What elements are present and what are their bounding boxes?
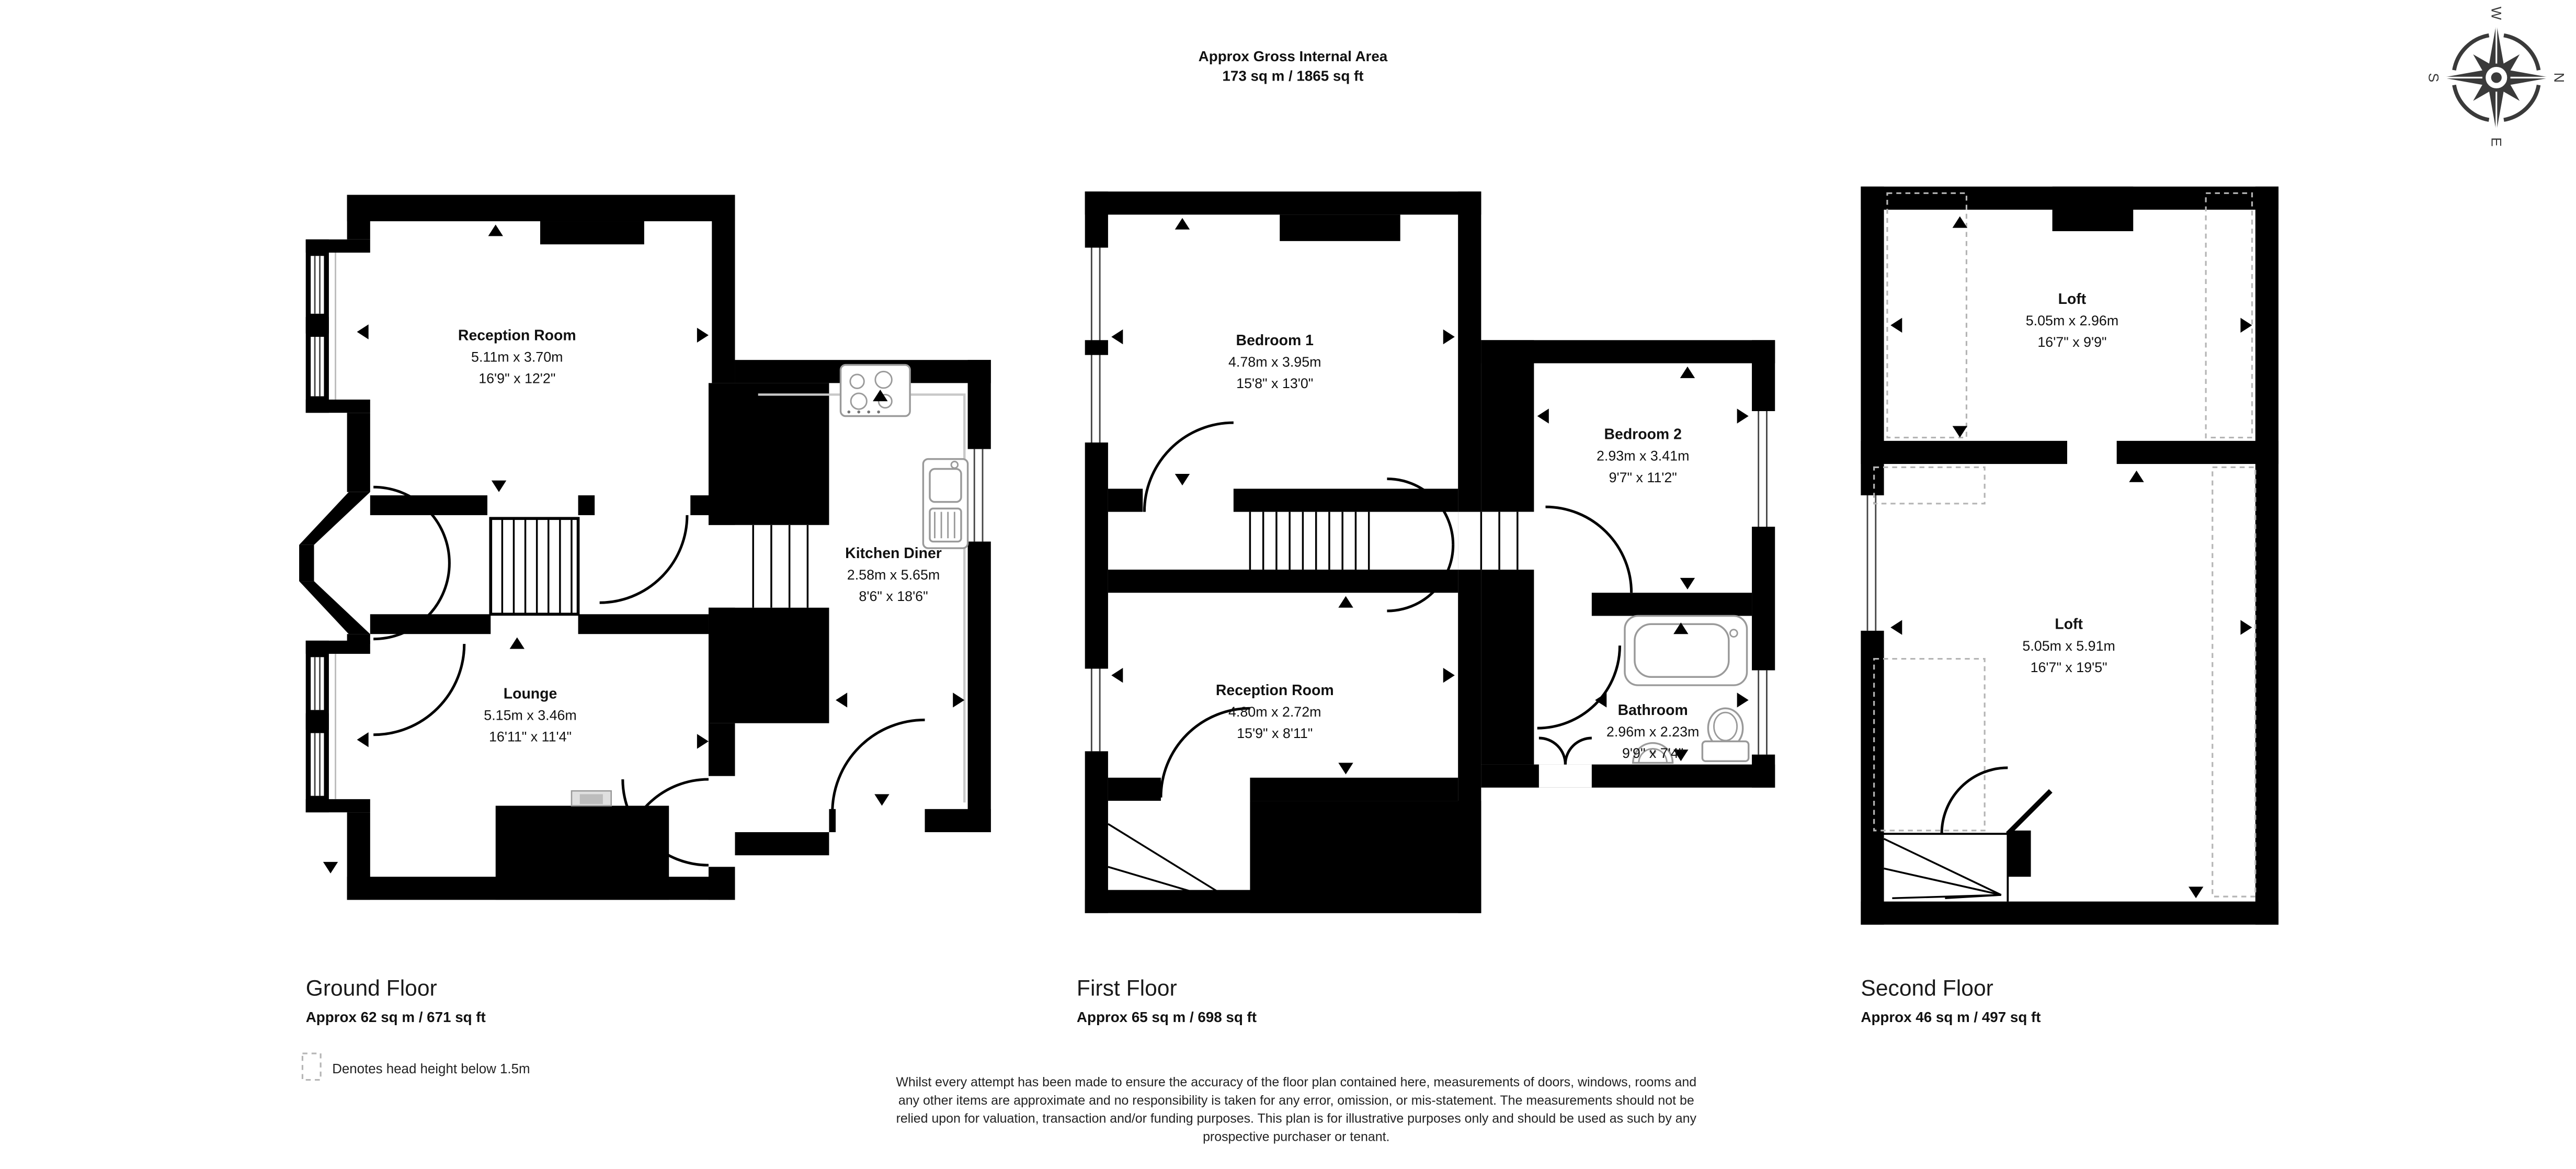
room-name: Reception Room: [458, 327, 576, 344]
room-label-reception-room-first: Reception Room 4.80m x 2.72m 15'9" x 8'1…: [1216, 682, 1334, 741]
room-imperial: 9'7" x 11'2": [1609, 470, 1677, 485]
room-imperial: 15'8" x 13'0": [1236, 376, 1313, 391]
room-label-loft-top: Loft 5.05m x 2.96m 16'7" x 9'9": [2026, 291, 2118, 350]
room-name: Reception Room: [1216, 682, 1334, 699]
room-label-lounge: Lounge 5.15m x 3.46m 16'11" x 11'4": [484, 685, 576, 744]
ground-floor-plan: Reception Room 5.11m x 3.70m 16'9" x 12'…: [299, 195, 991, 900]
disclaimer-block: Whilst every attempt has been made to en…: [896, 1075, 1696, 1144]
room-imperial: 9'9" x 7'4": [1622, 745, 1683, 761]
second-floor-area: Approx 46 sq m / 497 sq ft: [1861, 1009, 2041, 1025]
head-height-legend: Denotes head height below 1.5m: [302, 1053, 530, 1080]
room-label-bedroom-1: Bedroom 1 4.78m x 3.95m 15'8" x 13'0": [1228, 332, 1321, 391]
compass-w: W: [2488, 7, 2504, 20]
floorplan-page: Approx Gross Internal Area 173 sq m / 18…: [0, 0, 2576, 1169]
compass-e: E: [2488, 138, 2504, 147]
ground-floor-stairs-to-kitchen: [735, 525, 829, 608]
ground-floor-caption: Ground Floor: [306, 976, 437, 1001]
legend-text: Denotes head height below 1.5m: [332, 1062, 530, 1076]
stove-icon: [841, 365, 910, 416]
first-floor-plan: Bedroom 1 4.78m x 3.95m 15'8" x 13'0" Be…: [1085, 191, 1775, 913]
room-name: Loft: [2058, 291, 2087, 308]
second-floor-plan: Loft 5.05m x 2.96m 16'7" x 9'9" Loft 5.0…: [1861, 187, 2278, 925]
head-height-swatch-icon: [302, 1053, 321, 1080]
kitchen-sink-icon: [923, 459, 967, 548]
first-floor-area: Approx 65 sq m / 698 sq ft: [1077, 1009, 1257, 1025]
gross-internal-area-title: Approx Gross Internal Area 173 sq m / 18…: [1199, 48, 1388, 84]
compass-n: N: [2551, 73, 2567, 83]
first-floor-stairs: [1250, 512, 1369, 570]
room-metric: 5.15m x 3.46m: [484, 707, 576, 723]
room-imperial: 16'7" x 19'5": [2031, 660, 2107, 675]
floor-captions: Ground Floor Approx 62 sq m / 671 sq ft …: [306, 976, 2041, 1026]
room-label-kitchen-diner: Kitchen Diner 2.58m x 5.65m 8'6" x 18'6": [845, 545, 942, 604]
first-floor-doors: [1144, 423, 1631, 798]
room-imperial: 16'11" x 11'4": [489, 729, 572, 744]
room-label-loft-bottom: Loft 5.05m x 5.91m 16'7" x 19'5": [2022, 616, 2115, 675]
room-name: Bathroom: [1618, 702, 1688, 719]
room-metric: 5.05m x 5.91m: [2022, 638, 2115, 654]
room-label-bedroom-2: Bedroom 2 2.93m x 3.41m 9'7" x 11'2": [1597, 426, 1689, 485]
room-metric: 2.58m x 5.65m: [847, 567, 940, 583]
compass-s: S: [2425, 73, 2441, 82]
toilet-icon: [1702, 708, 1748, 761]
room-name: Lounge: [504, 685, 557, 702]
compass-rose-icon: W N S E: [2425, 7, 2567, 147]
room-metric: 5.05m x 2.96m: [2026, 313, 2118, 328]
room-imperial: 15'9" x 8'11": [1237, 725, 1313, 741]
room-metric: 5.11m x 3.70m: [471, 349, 563, 365]
room-label-reception-room-ground: Reception Room 5.11m x 3.70m 16'9" x 12'…: [458, 327, 576, 386]
disclaimer-line1: Whilst every attempt has been made to en…: [896, 1075, 1696, 1089]
room-name: Bedroom 1: [1236, 332, 1314, 349]
room-name: Bedroom 2: [1604, 426, 1682, 443]
bathtub-icon: [1625, 616, 1747, 685]
room-imperial: 16'9" x 12'2": [478, 370, 555, 386]
room-metric: 2.96m x 2.23m: [1606, 724, 1699, 740]
title-line2: 173 sq m / 1865 sq ft: [1222, 68, 1363, 84]
ground-floor-stairs: [491, 518, 578, 614]
room-name: Kitchen Diner: [845, 545, 942, 562]
title-line1: Approx Gross Internal Area: [1199, 48, 1388, 64]
ground-floor-area: Approx 62 sq m / 671 sq ft: [306, 1009, 486, 1025]
first-floor-caption: First Floor: [1077, 976, 1177, 1001]
room-metric: 4.80m x 2.72m: [1228, 704, 1321, 720]
second-floor-caption: Second Floor: [1861, 976, 1993, 1001]
disclaimer-line4: prospective purchaser or tenant.: [1203, 1129, 1389, 1144]
floorplan-svg: Approx Gross Internal Area 173 sq m / 18…: [0, 0, 2576, 1169]
disclaimer-line2: any other items are approximate and no r…: [898, 1093, 1694, 1108]
second-floor-winder-stairs: [1867, 768, 2050, 902]
room-name: Loft: [2055, 616, 2083, 633]
room-imperial: 16'7" x 9'9": [2037, 334, 2106, 350]
room-metric: 2.93m x 3.41m: [1597, 448, 1689, 464]
room-metric: 4.78m x 3.95m: [1228, 354, 1321, 370]
room-imperial: 8'6" x 18'6": [859, 588, 928, 604]
disclaimer-line3: relied upon for valuation, transaction a…: [896, 1111, 1697, 1126]
